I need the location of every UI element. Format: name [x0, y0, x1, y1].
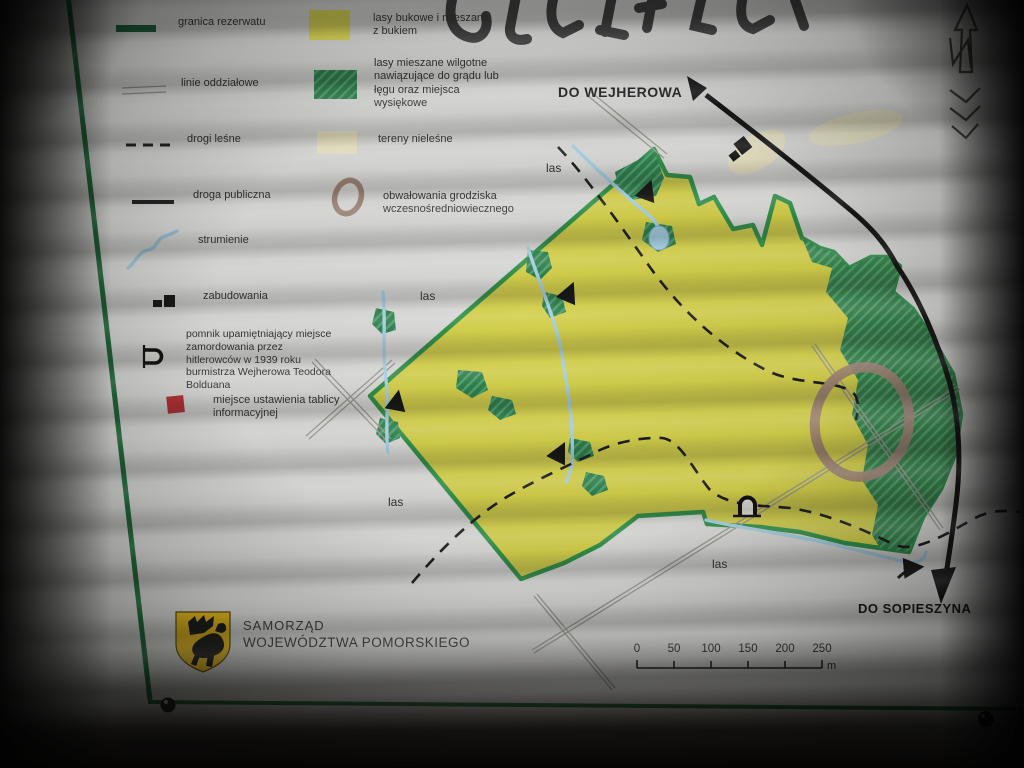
scalebar-tick: 250: [807, 642, 837, 656]
legend-label-beech: lasy bukowe i mieszane z bukiem: [373, 12, 493, 39]
legend-label-streams: strumienie: [198, 234, 249, 247]
legend-beech-swatch: [309, 10, 350, 40]
legend-monument-swatch: [144, 345, 162, 368]
scalebar-tick: 100: [696, 642, 726, 656]
scalebar-graphic: [637, 660, 822, 668]
forest-label: las: [546, 161, 561, 176]
non-forest-area: [806, 103, 906, 152]
legend-compartment-swatch: [122, 86, 166, 94]
scalebar-tick: 200: [770, 642, 800, 656]
legend-label-public-road: droga publiczna: [193, 189, 271, 202]
legend-boundary-swatch: [116, 25, 156, 32]
legend-label-rampart: obwałowania grodziska wczesnośredniowiec…: [383, 190, 558, 217]
road-arrowhead-south: [931, 567, 956, 604]
scalebar-unit: m: [827, 660, 836, 673]
legend-label-buildings: zabudowania: [203, 290, 268, 303]
legend-buildings-swatch: [153, 295, 175, 307]
footer-org-line1: SAMORZĄD: [243, 618, 325, 634]
legend-label-forest-roads: drogi leśne: [187, 133, 241, 146]
forest-label: las: [420, 289, 435, 304]
frame-bottom-line: [148, 702, 1022, 709]
legend-label-boundary: granica rezerwatu: [178, 16, 265, 29]
frame-left-line: [68, 0, 150, 700]
mounting-bolt-right: [978, 711, 994, 727]
footer-org-line2: WOJEWÓDZTWA POMORSKIEGO: [243, 635, 470, 651]
forest-label: las: [388, 495, 403, 510]
forest-label: las: [712, 557, 727, 572]
info-board-photo: granica rezerwatu linie oddziałowe drogi…: [0, 0, 1024, 768]
legend-non-forest-swatch: [317, 131, 357, 154]
legend-label-compartment: linie oddziałowe: [181, 77, 259, 90]
road-arrowhead-north: [687, 76, 707, 101]
pomorskie-crest: [176, 612, 230, 672]
compass-north-doodle: [950, 5, 980, 138]
map-drawing: [0, 0, 1024, 768]
legend-label-info-board: miejsce ustawienia tablicy informacyjnej: [213, 394, 343, 421]
scalebar-tick: 0: [622, 642, 652, 656]
scalebar-tick: 150: [733, 642, 763, 656]
mounting-bolt-left: [161, 698, 176, 713]
legend-label-monument: pomnik upamiętniający miejsce zamordowan…: [186, 328, 336, 392]
direction-label-wejherowo: DO WEJHEROWA: [558, 84, 682, 101]
scalebar-tick: 50: [659, 642, 689, 656]
pond: [649, 226, 669, 250]
legend-info-board-swatch: [166, 395, 185, 414]
legend-label-wet-forest: lasy mieszane wilgotne nawiązujące do gr…: [374, 57, 509, 111]
legend-stream-swatch: [128, 231, 177, 268]
graffiti-marks: [451, 0, 804, 40]
legend-wet-forest-swatch: [314, 70, 357, 99]
legend-rampart-swatch: [330, 177, 365, 217]
direction-label-sopieszyno: DO SOPIESZYNA: [858, 601, 971, 617]
legend-label-non-forest: tereny nieleśne: [378, 133, 453, 146]
